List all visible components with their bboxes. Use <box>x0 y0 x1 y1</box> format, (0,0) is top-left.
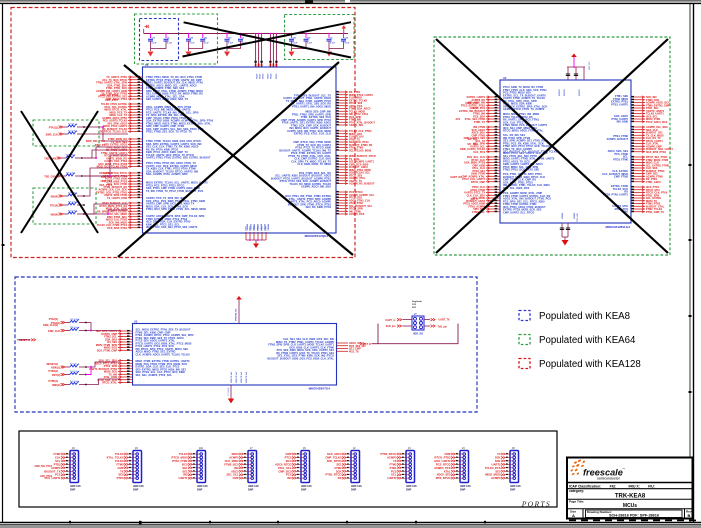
svg-text:SCL: SCL <box>55 459 61 463</box>
svg-text:PTD3: PTD3 <box>117 476 124 480</box>
svg-text:TXD_CAN: TXD_CAN <box>44 175 56 178</box>
svg-text:SCL_TCLK0_MOSI: SCL_TCLK0_MOSI <box>349 149 372 152</box>
svg-text:Populated with KEA8: Populated with KEA8 <box>539 311 630 322</box>
svg-text:CLK_MISO: CLK_MISO <box>225 459 239 463</box>
svg-text:™: ™ <box>622 467 625 471</box>
svg-text:CMP_I2C0: CMP_I2C0 <box>278 469 292 473</box>
svg-text:R25 10K: R25 10K <box>68 201 76 203</box>
svg-text:NMI(1): NMI(1) <box>52 384 60 387</box>
svg-text:XTAL: XTAL <box>444 469 451 473</box>
svg-text:EXTRG_PCS_XTAL_CLK_CLK: EXTRG_PCS_XTAL_CLK_CLK <box>294 132 331 136</box>
svg-text:ADC_PTF5: ADC_PTF5 <box>105 99 119 102</box>
svg-text:PTC2: PTC2 <box>285 455 292 459</box>
svg-text:RTCO_CMP: RTCO_CMP <box>471 181 485 184</box>
svg-text:MKE04Z8VTG4: MKE04Z8VTG4 <box>309 386 331 390</box>
svg-text:SCK_ADC0: SCK_ADC0 <box>327 452 342 456</box>
svg-text:RST(1): RST(1) <box>52 374 60 377</box>
svg-text:CMP: CMP <box>233 476 239 480</box>
svg-text:R7 10K: R7 10K <box>68 123 75 125</box>
svg-text:FTM2: FTM2 <box>389 462 397 466</box>
svg-text:I2C_SCL: I2C_SCL <box>468 138 479 141</box>
svg-text:MISO_MOSI: MISO_MOSI <box>485 473 500 477</box>
svg-text:0.1uF: 0.1uF <box>330 43 336 45</box>
svg-text:RX: RX <box>338 476 342 480</box>
svg-text:UART_TX: UART_TX <box>439 318 450 321</box>
svg-text:ACMP0_PCS: ACMP0_PCS <box>434 466 451 470</box>
svg-text:PCS_TX: PCS_TX <box>349 350 359 353</box>
svg-text:VSS3: VSS3 <box>246 225 248 231</box>
svg-text:UDA_PTA6: UDA_PTA6 <box>99 172 113 175</box>
svg-text:R24 10K: R24 10K <box>70 381 78 383</box>
svg-text:TxD_pin: TxD_pin <box>438 325 448 328</box>
svg-text:0.1uF: 0.1uF <box>307 43 313 45</box>
svg-text:C0: C0 <box>242 38 244 40</box>
svg-text:C67: C67 <box>228 38 231 40</box>
svg-text:PORTS: PORTS <box>521 500 551 509</box>
svg-text:TX: TX <box>393 459 397 463</box>
svg-text:ACMP0: ACMP0 <box>51 466 61 470</box>
svg-text:Page Title:: Page Title: <box>569 500 584 504</box>
svg-text:I2C0: I2C0 <box>286 459 292 463</box>
svg-text:FTM0: FTM0 <box>116 462 124 466</box>
svg-text:UART1: UART1 <box>179 476 188 480</box>
svg-text:C66: C66 <box>307 38 310 40</box>
svg-text:UART1_SE1: UART1_SE1 <box>349 124 364 127</box>
svg-text:PCS_SPI0_PTB1: PCS_SPI0_PTB1 <box>107 227 127 230</box>
svg-text:PTB1_UART1_IN0_ADC0_MISO: PTB1_UART1_IN0_ADC0_MISO <box>292 104 331 108</box>
svg-text:BUSOUT_TX: BUSOUT_TX <box>44 469 60 473</box>
svg-text:semiconductor: semiconductor <box>597 476 621 480</box>
svg-text:TRK-KEA8: TRK-KEA8 <box>615 494 646 500</box>
svg-text:VSS C0.1uF: VSS C0.1uF <box>231 371 233 383</box>
svg-text:MKE02Z64VQH4: MKE02Z64VQH4 <box>305 234 329 238</box>
svg-text:PTB1_RTCO: PTB1_RTCO <box>326 473 342 477</box>
svg-text:PCS: PCS <box>391 469 397 473</box>
svg-text:R14 10K: R14 10K <box>68 130 76 132</box>
svg-text:ACMP0: ACMP0 <box>387 455 397 459</box>
svg-text:UART1_FTM1_FTM1_EXTRG_SE0_EXTR: UART1_FTM1_FTM1_EXTRG_SE0_EXTRG_BUSOUT <box>146 156 211 160</box>
svg-text:SE1_SE1_ACMP0_PTC2_SCL: SE1_SE1_ACMP0_PTC2_SCL <box>136 373 173 377</box>
svg-text:UDD_TX4: UDD_TX4 <box>101 180 113 183</box>
svg-text:TCLK0_PCS: TCLK0_PCS <box>485 466 501 470</box>
svg-text:VSS6: VSS6 <box>258 225 260 231</box>
svg-text:KBI_P: KBI_P <box>471 198 479 201</box>
svg-text:SCH-28616 PDF: SPF-28616: SCH-28616 PDF: SPF-28616 <box>609 514 659 518</box>
svg-text:VDD3: VDD3 <box>268 73 270 79</box>
svg-text:XTAL_SCL: XTAL_SCL <box>278 466 292 470</box>
svg-text:FTM2_PTB1_I2C0_PTA0_SE0: FTM2_PTB1_I2C0_PTA0_SE0 <box>503 168 540 172</box>
svg-text:PTB5(1): PTB5(1) <box>49 380 59 383</box>
svg-text:UDA_PTA7: UDA_PTA7 <box>99 184 113 187</box>
svg-text:CMP: CMP <box>118 466 124 470</box>
svg-text:TCLK0: TCLK0 <box>115 459 124 463</box>
svg-text:VDD0: VDD0 <box>257 73 259 79</box>
svg-text:CLK: CLK <box>55 455 61 459</box>
svg-text:KBI(4): KBI(4) <box>51 213 59 216</box>
svg-text:SPI0_RTCO: SPI0_RTCO <box>436 476 451 480</box>
svg-text:FTM2: FTM2 <box>334 466 342 470</box>
svg-text:UART_rx: UART_rx <box>385 319 396 322</box>
svg-text:UART_RX: UART_RX <box>450 176 462 179</box>
svg-text:SE0_RX_KBI0_PTC2: SE0_RX_KBI0_PTC2 <box>306 205 332 209</box>
svg-text:R30 10K: R30 10K <box>70 327 78 329</box>
svg-text:PTD3_RTCO: PTD3_RTCO <box>381 452 397 456</box>
svg-text:U3: U3 <box>134 320 138 324</box>
svg-text:CLK_KBI0_MOSI_TX_MISO: CLK_KBI0_MOSI_TX_MISO <box>297 162 331 166</box>
svg-text:PTB1_FTM2_SE1_SCK_TX_PTD3_TX: PTB1_FTM2_SE1_SCK_TX_PTD3_TX <box>146 130 192 134</box>
svg-text:HDR 1X8: HDR 1X8 <box>510 485 521 488</box>
svg-text:GND_CLK(1): GND_CLK(1) <box>43 324 58 327</box>
svg-text:TX_RTCO_TCLK0_CLK: TX_RTCO_TCLK0_CLK <box>99 131 127 134</box>
svg-text:VDD33: VDD33 <box>564 89 566 96</box>
svg-text:PTB1_CMP_TX: PTB1_CMP_TX <box>646 211 664 214</box>
svg-text:R7 10K: R7 10K <box>70 363 77 365</box>
svg-text:BUSOUT_BUSOUT_KBI0_I2C0_PCS_KB: BUSOUT_BUSOUT_KBI0_I2C0_PCS_KBI0_CLK_XTA… <box>267 356 334 360</box>
svg-text:0.1uF: 0.1uF <box>190 43 196 45</box>
svg-text:PTB1_UART0: PTB1_UART0 <box>611 102 628 106</box>
svg-text:Populated with KEA64: Populated with KEA64 <box>539 335 636 346</box>
svg-text:TX_UART0_KBI0: TX_UART0_KBI0 <box>107 197 128 200</box>
svg-text:RTCO_PTD3: RTCO_PTD3 <box>435 455 451 459</box>
svg-text:KBI(4): KBI(4) <box>51 195 59 198</box>
svg-text:DNP: DNP <box>406 489 412 492</box>
svg-text:DNP: DNP <box>133 489 139 492</box>
svg-text:PTC(4): PTC(4) <box>50 204 58 207</box>
svg-text:RESET(1): RESET(1) <box>47 363 59 366</box>
svg-text:VSS1: VSS1 <box>262 225 264 231</box>
svg-text:HDR 1X8: HDR 1X8 <box>460 485 471 488</box>
svg-text:KBI0_P4: KBI0_P4 <box>95 144 106 147</box>
svg-text:VSS2: VSS2 <box>254 225 256 231</box>
svg-text:VREF_PTA: VREF_PTA <box>465 102 478 105</box>
svg-text:SCK: SCK <box>336 469 342 473</box>
svg-text:DNP: DNP <box>70 489 76 492</box>
svg-text:RxD_pin: RxD_pin <box>386 325 396 328</box>
svg-text:SE1: SE1 <box>182 469 188 473</box>
svg-text:DNP: DNP <box>510 489 516 492</box>
svg-text:PCS: PCS <box>55 473 61 477</box>
svg-text:VDD33: VDD33 <box>579 89 581 96</box>
svg-text:SCK_RTCO: SCK_RTCO <box>327 459 342 463</box>
svg-text:GND_SIG_PTA4: GND_SIG_PTA4 <box>35 465 53 468</box>
svg-text:HDR 1X8: HDR 1X8 <box>351 485 362 488</box>
svg-text:RTCO_MOSI: RTCO_MOSI <box>172 455 188 459</box>
svg-text:SE1: SE1 <box>182 466 188 470</box>
svg-text:CMP_FTM2: CMP_FTM2 <box>614 175 629 179</box>
svg-text:CMP_TCLK0: CMP_TCLK0 <box>325 455 342 459</box>
svg-text:ACMP0_BUSOUT: ACMP0_BUSOUT <box>607 137 629 141</box>
svg-text:FTM1_ADC0: FTM1_ADC0 <box>646 181 661 184</box>
svg-text:FTM1_I2C0_SPI0_FTM2_FTM1_SCL_M: FTM1_I2C0_SPI0_FTM2_FTM1_SCL_MISO_MOSI <box>146 207 206 211</box>
svg-text:SCK: SCK <box>495 459 501 463</box>
svg-text:MOSI: MOSI <box>232 452 239 456</box>
svg-text:I2C0_SPI0_PTD3: I2C0_SPI0_PTD3 <box>646 151 666 154</box>
svg-text:PTD3: PTD3 <box>54 462 61 466</box>
svg-text:CMP_UART2_SCL_RTCO: CMP_UART2_SCL_RTCO <box>503 210 534 214</box>
svg-text:I2C0: I2C0 <box>182 462 188 466</box>
svg-text:C? 0.1uF: C? 0.1uF <box>228 387 230 396</box>
svg-text:ACMP0_PCS: ACMP0_PCS <box>349 213 365 216</box>
svg-text:IN0: IN0 <box>234 466 239 470</box>
svg-text:TCLK0: TCLK0 <box>179 452 188 456</box>
svg-text:DNP: DNP <box>351 489 357 492</box>
svg-text:PTA0_FTM1: PTA0_FTM1 <box>172 459 188 463</box>
svg-text:HDR 1X8: HDR 1X8 <box>301 485 312 488</box>
svg-text:0.1uF: 0.1uF <box>152 43 158 45</box>
svg-text:PTD3_FTM0: PTD3_FTM0 <box>613 157 628 161</box>
svg-text:0.1uF: 0.1uF <box>293 43 299 45</box>
svg-text:R22 10K: R22 10K <box>70 319 78 321</box>
svg-text:PTA2(1): PTA2(1) <box>49 318 58 321</box>
svg-text:C6: C6 <box>167 38 169 40</box>
svg-text:ADC0: ADC0 <box>231 469 239 473</box>
svg-text:HDR 1X8: HDR 1X8 <box>70 485 81 488</box>
svg-text:HDR 1X8: HDR 1X8 <box>248 485 259 488</box>
svg-text:SCK: SCK <box>495 455 501 459</box>
svg-text:VSS7: VSS7 <box>250 225 252 231</box>
svg-text:IN0: IN0 <box>183 473 188 477</box>
svg-text:VSS C0.1uF: VSS C0.1uF <box>236 371 238 383</box>
svg-text:0.1uF: 0.1uF <box>204 43 210 45</box>
svg-text:IN0: IN0 <box>287 476 292 480</box>
svg-text:CMP: CMP <box>445 452 451 456</box>
svg-text:CMP: CMP <box>286 452 292 456</box>
svg-text:ACMP0: ACMP0 <box>229 455 239 459</box>
svg-text:R14 10K: R14 10K <box>70 371 78 373</box>
svg-text:PTA1(1): PTA1(1) <box>49 126 58 129</box>
svg-text:C42: C42 <box>204 37 207 40</box>
svg-text:ADC0_RTCO: ADC0_RTCO <box>275 462 291 466</box>
svg-text:C70: C70 <box>152 38 155 40</box>
svg-text:R34 10K: R34 10K <box>68 210 76 212</box>
svg-text:DNP: DNP <box>301 489 307 492</box>
svg-text:VDD 3V3: VDD 3V3 <box>589 61 591 70</box>
svg-text:MCUs: MCUs <box>623 503 637 509</box>
svg-text:VSS C0.1uF: VSS C0.1uF <box>246 371 248 383</box>
svg-text:DNP: DNP <box>197 489 203 492</box>
svg-text:U2: U2 <box>503 76 507 80</box>
svg-text:RTCO_XTAL: RTCO_XTAL <box>102 382 117 385</box>
svg-text:HDR 1X8: HDR 1X8 <box>133 485 144 488</box>
svg-text:PTB4(1): PTB4(1) <box>49 370 59 373</box>
svg-text:SCL: SCL <box>391 473 397 477</box>
svg-text:PCS: PCS <box>286 473 292 477</box>
svg-text:C51: C51 <box>293 38 296 40</box>
svg-text:ADC_P: ADC_P <box>470 107 479 110</box>
svg-text:VDD5: VDD5 <box>276 73 278 79</box>
svg-text:DNP: DNP <box>460 489 466 492</box>
svg-text:SE0: SE0 <box>495 469 501 473</box>
svg-text:ACMP0: ACMP0 <box>491 476 501 480</box>
svg-text:SDA_ACMP0_PTA0_ACMP0_SPI0: SDA_ACMP0_PTA0_ACMP0_SPI0 <box>146 172 188 176</box>
svg-text:ADC_PTA6: ADC_PTA6 <box>40 475 53 478</box>
svg-text:GND_AD_PTF4: GND_AD_PTF4 <box>100 94 119 97</box>
svg-text:ACMP0_RX_BUSOUT: ACMP0_RX_BUSOUT <box>349 183 375 186</box>
svg-text:PTB1: PTB1 <box>390 466 397 470</box>
svg-text:IN0_KBI0: IN0_KBI0 <box>617 120 629 124</box>
svg-text:ACMP0_ADC0_IN0_SDA: ACMP0_ADC0_IN0_SDA <box>301 185 331 189</box>
svg-text:I2C0_UART2: I2C0_UART2 <box>434 459 451 463</box>
svg-text:R56 10K: R56 10K <box>66 172 74 174</box>
svg-text:VSS C0.1uF: VSS C0.1uF <box>241 371 243 383</box>
svg-text:KBI0(1): KBI0(1) <box>51 366 60 369</box>
svg-text:A: A <box>572 513 575 518</box>
svg-text:0.1uF: 0.1uF <box>167 43 173 45</box>
svg-text:VDD33: VDD33 <box>559 89 561 96</box>
svg-text:PCS_RTCO: PCS_RTCO <box>436 462 451 466</box>
svg-text:SE1: SE1 <box>336 462 342 466</box>
svg-text:HDR_202: HDR_202 <box>413 334 424 336</box>
svg-text:I2C_SDA: I2C_SDA <box>467 143 478 146</box>
svg-text:U1: U1 <box>145 63 149 67</box>
svg-text:C9: C9 <box>330 38 332 40</box>
svg-text:C28: C28 <box>190 38 193 40</box>
svg-text:GND_CLK: GND_CLK <box>48 330 60 333</box>
svg-text:Populated with KEA128: Populated with KEA128 <box>539 359 641 370</box>
svg-text:ADC0_SE0: ADC0_SE0 <box>437 473 451 477</box>
svg-text:C23: C23 <box>345 38 348 40</box>
svg-text:TCLK0: TCLK0 <box>115 452 124 456</box>
svg-text:B: B <box>688 513 691 518</box>
svg-text:FTM1_TX: FTM1_TX <box>474 121 485 124</box>
svg-text:CLK_PCS: CLK_PCS <box>473 151 485 154</box>
svg-text:SWD_CLK: SWD_CLK <box>46 133 59 136</box>
svg-text:Deglaude: Deglaude <box>412 301 423 303</box>
svg-text:VSS5: VSS5 <box>266 225 268 231</box>
svg-text:HDR 1X8: HDR 1X8 <box>406 485 417 488</box>
svg-text:SE0: SE0 <box>118 473 124 477</box>
svg-text:TX: TX <box>120 469 124 473</box>
svg-text:VSS00: VSS00 <box>562 212 564 219</box>
svg-text:VREGIN 3Y3: VREGIN 3Y3 <box>236 308 238 321</box>
svg-text:SE1_SCL: SE1_SCL <box>227 473 239 477</box>
svg-text:UART2: UART2 <box>388 476 397 480</box>
svg-text:0.1uF: 0.1uF <box>228 43 234 45</box>
svg-text:CLK_ACMP0_ADC0_UART0_TCLK0_TCL: CLK_ACMP0_ADC0_UART0_TCLK0_TCLK0 <box>136 352 191 356</box>
svg-text:FTM2: FTM2 <box>53 452 61 456</box>
svg-text:J10: J10 <box>199 447 204 450</box>
svg-text:SCK_FTM0_CMP: SCK_FTM0_CMP <box>97 349 117 352</box>
svg-text:PTC2_ADC0_I2C0: PTC2_ADC0_I2C0 <box>646 121 668 124</box>
svg-text:0.1uF: 0.1uF <box>345 43 351 45</box>
svg-text:FTM2_I2C0: FTM2_I2C0 <box>224 462 239 466</box>
svg-text:UART2: UART2 <box>492 462 501 466</box>
svg-text:MKE04Z128VLH4: MKE04Z128VLH4 <box>605 225 630 229</box>
svg-text:VDD1: VDD1 <box>260 73 262 79</box>
svg-text:DNP: DNP <box>248 489 254 492</box>
svg-text:3V3: 3V3 <box>456 118 461 121</box>
svg-text:VSS00: VSS00 <box>574 212 576 219</box>
svg-text:VDD2: VDD2 <box>263 73 265 79</box>
svg-text:TX: TX <box>497 452 501 456</box>
svg-text:VDD4: VDD4 <box>270 73 273 79</box>
svg-text:HDR 1X8: HDR 1X8 <box>197 485 208 488</box>
svg-text:XTAL_TCLK0: XTAL_TCLK0 <box>107 455 124 459</box>
svg-text:VSS GND: VSS GND <box>577 212 579 222</box>
svg-text:category:: category: <box>569 489 584 493</box>
